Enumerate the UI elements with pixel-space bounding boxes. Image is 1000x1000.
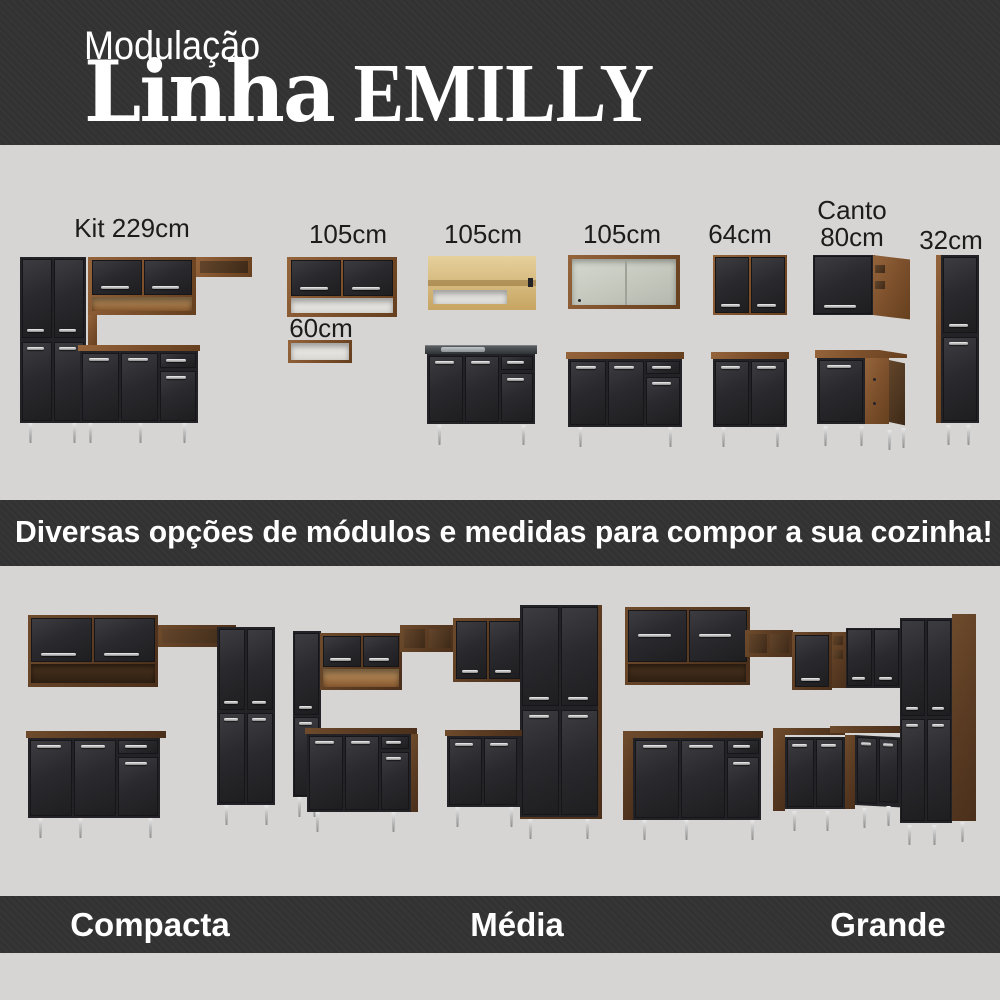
cabinet-door — [943, 337, 977, 421]
wood-countertop — [830, 726, 900, 733]
cabinet-leg — [78, 818, 83, 838]
side-panel — [623, 738, 633, 820]
cabinet-leg — [960, 822, 965, 842]
cabinet-leg — [966, 425, 971, 445]
cabinet-door — [219, 713, 245, 803]
cabinet-door — [646, 377, 680, 425]
cabinet-door — [814, 256, 872, 314]
cabinet-leg — [437, 425, 442, 445]
wood-countertop — [623, 731, 763, 738]
cabinet-drawer — [646, 361, 680, 374]
cabinet-door — [294, 633, 319, 715]
cabinet-door — [489, 621, 520, 679]
module-label-105-a: 105cm — [309, 221, 387, 248]
cabinet-door — [927, 620, 951, 716]
cabinet-door — [561, 710, 598, 815]
cabinet-leg — [668, 427, 673, 447]
open-shelf — [323, 669, 399, 687]
kitchen-label-grande: Grande — [830, 906, 946, 944]
cabinet-door — [608, 361, 644, 425]
open-niche — [433, 290, 507, 304]
cabinet-drawer — [381, 736, 409, 749]
kitchen-grande-image — [620, 600, 986, 856]
cabinet-door — [927, 719, 951, 821]
open-shelf — [628, 664, 746, 682]
module-kit229-image — [20, 255, 254, 447]
open-niche — [291, 343, 349, 360]
cabinet-door — [363, 636, 399, 667]
cabinet-drawer — [501, 356, 533, 370]
wood-shelf-opening — [749, 634, 767, 653]
glass-door-divider — [625, 259, 627, 305]
cabinet-door — [751, 361, 785, 425]
wood-countertop — [566, 352, 684, 359]
cabinet-leg — [224, 805, 229, 825]
kitchen-label-compacta: Compacta — [70, 906, 230, 944]
cabinet-door — [345, 736, 379, 810]
cabinet-door — [901, 620, 925, 716]
cabinet-leg — [901, 428, 906, 448]
module-canto80-base-image — [815, 350, 910, 447]
module-label-kit229: Kit 229cm — [74, 215, 190, 242]
cabinet-leg — [297, 797, 302, 817]
module-label-canto80-line2: 80cm — [820, 222, 884, 252]
cabinet-drawer — [118, 740, 158, 754]
hinge-notch — [528, 278, 533, 287]
wood-grain-band — [428, 280, 536, 286]
cabinet-door — [681, 740, 725, 818]
cabinet-door — [879, 738, 898, 803]
cabinet-leg — [455, 807, 460, 827]
wood-shelf-opening — [429, 629, 451, 648]
cabinet-drawer — [727, 740, 759, 754]
cabinet-door — [522, 710, 559, 815]
cabinet-door — [54, 259, 84, 338]
cabinet-door — [628, 610, 687, 662]
cabinet-leg — [578, 427, 583, 447]
cabinet-leg — [148, 818, 153, 838]
page-title-primary: Linha — [84, 42, 334, 141]
banner-band: Diversas opções de módulos e medidas par… — [0, 500, 1000, 566]
cabinet-leg — [823, 426, 828, 446]
cabinet-door — [118, 757, 158, 816]
cabinet-door — [94, 618, 155, 662]
module-105-sink-base-image — [425, 345, 537, 445]
wood-countertop — [26, 731, 166, 738]
cabinet-leg — [72, 423, 77, 443]
kitchen-compacta-image — [18, 600, 288, 852]
kitchen-names-band: Compacta Média Grande — [0, 896, 1000, 953]
cabinet-door — [74, 740, 116, 816]
cabinet-door — [449, 738, 482, 805]
wood-shelf-opening — [200, 261, 248, 273]
cabinet-door — [121, 353, 158, 421]
cabinet-door — [144, 260, 192, 295]
cabinet-leg — [315, 812, 320, 832]
cabinet-door — [343, 260, 393, 296]
side-panel — [88, 315, 97, 347]
cabinet-door — [291, 260, 341, 296]
module-105-base-image — [566, 352, 684, 447]
cabinet-door — [22, 259, 52, 338]
cabinet-leg — [138, 423, 143, 443]
open-shelf — [92, 297, 192, 311]
cabinet-leg — [862, 808, 867, 828]
banner-text: Diversas opções de módulos e medidas par… — [15, 514, 985, 550]
cabinet-door — [715, 361, 749, 425]
cabinet-leg — [684, 820, 689, 840]
cabinet-door — [787, 739, 814, 807]
door-knob — [578, 299, 581, 302]
side-panel — [411, 734, 418, 812]
cabinet-door — [795, 635, 829, 687]
cabinet-door — [874, 629, 899, 686]
module-64-wall-image — [713, 255, 787, 315]
module-60-niche-image — [288, 340, 352, 363]
cabinet-leg — [907, 825, 912, 845]
module-105-wall-image — [287, 257, 397, 317]
cabinet-door — [501, 373, 533, 422]
cabinet-door — [381, 752, 409, 810]
cabinet-door — [247, 629, 273, 710]
module-label-canto80-line1: Canto — [817, 195, 886, 225]
cabinet-door — [429, 356, 463, 422]
cabinet-door — [247, 713, 273, 803]
wood-shelf-opening — [770, 634, 789, 653]
cabinet-leg — [859, 426, 864, 446]
cabinet-door — [484, 738, 517, 805]
open-shelf — [31, 664, 155, 683]
cabinet-door — [522, 607, 559, 706]
sink — [441, 347, 485, 352]
cabinet-leg — [946, 425, 951, 445]
cabinet-door — [160, 371, 196, 421]
header-band: Modulação LinhaEMILLY — [0, 0, 1000, 145]
module-105-glass-image — [568, 255, 680, 309]
promo-page: { "header": { "kicker": "Modulação", "ti… — [0, 0, 1000, 1000]
module-label-60: 60cm — [289, 315, 353, 342]
module-label-105-b: 105cm — [444, 221, 522, 248]
cabinet-leg — [886, 806, 891, 826]
corner-side-panel — [889, 360, 905, 425]
cabinet-leg — [521, 425, 526, 445]
cabinet-leg — [391, 812, 396, 832]
cabinet-door — [570, 361, 606, 425]
wood-countertop — [711, 352, 789, 359]
cabinet-door — [323, 636, 361, 667]
module-64-base-image — [711, 352, 789, 447]
cabinet-leg — [509, 807, 514, 827]
cabinet-leg — [750, 820, 755, 840]
open-niche — [875, 265, 885, 273]
cabinet-leg — [88, 423, 93, 443]
cabinet-door — [465, 356, 499, 422]
module-32-tall-image — [936, 255, 982, 447]
door-knob — [873, 378, 876, 381]
cabinet-door — [816, 739, 843, 807]
page-title: LinhaEMILLY — [84, 50, 676, 136]
wood-door — [865, 358, 889, 424]
cabinet-leg — [721, 427, 726, 447]
module-label-64: 64cm — [708, 221, 772, 248]
cabinet-leg — [585, 819, 590, 839]
cabinet-leg — [642, 820, 647, 840]
cabinet-door — [819, 360, 863, 422]
cabinet-door — [92, 260, 142, 295]
open-niche — [291, 298, 393, 313]
cabinet-door — [847, 629, 872, 686]
cabinet-leg — [182, 423, 187, 443]
cabinet-door — [901, 719, 925, 821]
cabinet-door — [635, 740, 679, 818]
cabinet-door — [689, 610, 747, 662]
door-knob — [873, 402, 876, 405]
module-label-canto80: Canto80cm — [817, 197, 886, 251]
cabinet-door — [561, 607, 598, 706]
cabinet-leg — [28, 423, 33, 443]
module-105-pine-image — [428, 256, 536, 310]
wood-shelf-opening — [404, 629, 425, 648]
module-canto80-wall-image — [813, 255, 911, 319]
cabinet-door — [309, 736, 343, 810]
cabinet-drawer — [160, 353, 196, 368]
corner-post — [845, 735, 855, 809]
cabinet-leg — [792, 811, 797, 831]
wood-countertop — [815, 350, 907, 358]
cabinet-door — [727, 757, 759, 818]
kitchen-media-image — [293, 600, 625, 845]
cabinet-door — [456, 621, 487, 679]
glass-door — [572, 259, 676, 305]
cabinet-leg — [528, 819, 533, 839]
module-label-32: 32cm — [919, 227, 983, 254]
open-niche — [875, 281, 885, 289]
cabinet-door — [857, 737, 877, 804]
cabinet-door — [219, 629, 245, 710]
cabinet-door — [715, 257, 749, 313]
cabinet-leg — [38, 818, 43, 838]
kitchen-label-media: Média — [470, 906, 564, 944]
cabinet-door — [30, 740, 72, 816]
module-label-105-c: 105cm — [583, 221, 661, 248]
cabinet-door — [22, 342, 52, 421]
cabinet-door — [82, 353, 119, 421]
page-title-secondary: EMILLY — [353, 52, 653, 136]
cabinet-leg — [264, 805, 269, 825]
cabinet-leg — [932, 825, 937, 845]
cabinet-door — [943, 257, 977, 333]
side-panel — [773, 735, 785, 811]
open-niche — [833, 636, 843, 645]
cabinet-door — [751, 257, 785, 313]
side-panel — [952, 614, 976, 821]
cabinet-leg — [825, 811, 830, 831]
cabinet-leg — [775, 427, 780, 447]
cabinet-door — [31, 618, 92, 662]
open-niche — [833, 650, 843, 659]
